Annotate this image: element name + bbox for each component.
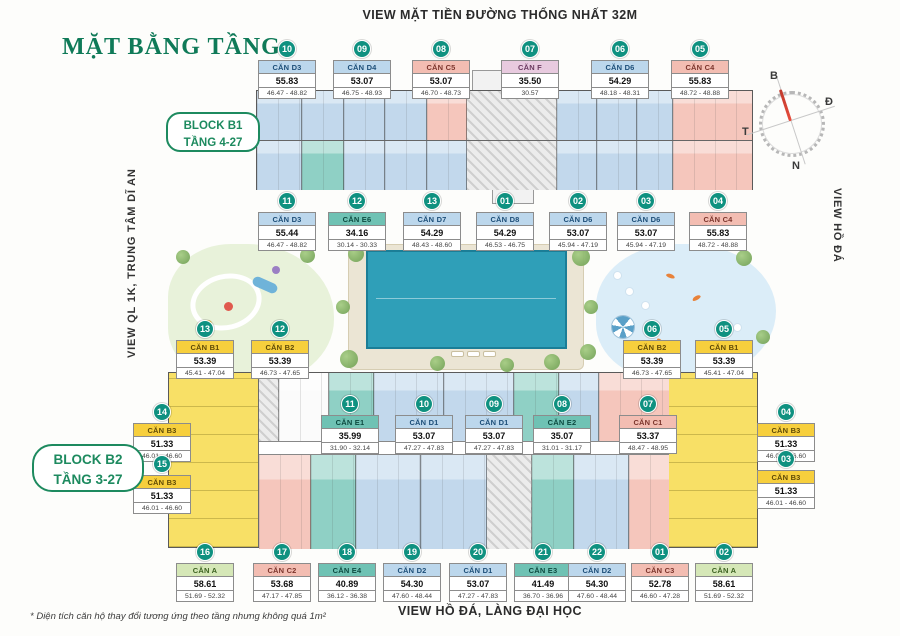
unit-range: 31.90 - 32.14 (321, 443, 379, 454)
koi-fish-icon (666, 273, 676, 280)
unit-name: CĂN E2 (533, 415, 591, 428)
unit-badge: 09 (485, 395, 503, 413)
unit-range: 48.72 - 48.88 (671, 88, 729, 99)
unit-area: 41.49 (514, 576, 572, 591)
unit-area: 53.39 (176, 353, 234, 368)
unit-badge: 01 (496, 192, 514, 210)
compass-rose: B Đ T N (748, 74, 834, 170)
unit-badge: 16 (196, 543, 214, 561)
unit-card: 09 CĂN D1 53.07 47.27 - 47.83 (465, 395, 523, 454)
unit-card: 02 CĂN A 58.61 51.69 - 52.32 (695, 543, 753, 602)
unit-range: 30.57 (501, 88, 559, 99)
unit-name: CĂN E4 (318, 563, 376, 576)
b2-right-wing (667, 373, 757, 547)
tree-icon (580, 344, 596, 360)
unit-badge: 10 (415, 395, 433, 413)
unit-name: CĂN D3 (258, 212, 316, 225)
unit-name: CĂN D1 (465, 415, 523, 428)
unit-area: 54.29 (591, 73, 649, 88)
unit-area: 54.30 (568, 576, 626, 591)
unit-card: 16 CĂN A 58.61 51.69 - 52.32 (176, 543, 234, 602)
unit-area: 54.29 (403, 225, 461, 240)
unit-range: 47.60 - 48.44 (383, 591, 441, 602)
unit-name: CĂN D2 (383, 563, 441, 576)
tree-icon (336, 300, 350, 314)
unit-badge: 09 (353, 40, 371, 58)
unit-badge: 04 (709, 192, 727, 210)
unit-card: 12 CĂN E6 34.16 30.14 - 30.33 (328, 192, 386, 251)
unit-range: 46.01 - 46.60 (757, 498, 815, 509)
unit-badge: 05 (691, 40, 709, 58)
unit-range: 36.12 - 36.38 (318, 591, 376, 602)
unit-area: 55.83 (671, 73, 729, 88)
unit-badge: 07 (639, 395, 657, 413)
unit-area: 35.99 (321, 428, 379, 443)
unit-range: 46.73 - 47.65 (251, 368, 309, 379)
unit-name: CĂN D2 (568, 563, 626, 576)
unit-badge: 08 (553, 395, 571, 413)
unit-area: 35.07 (533, 428, 591, 443)
unit-name: CĂN A (695, 563, 753, 576)
unit-range: 46.01 - 46.60 (133, 503, 191, 514)
unit-card: 04 CĂN C4 55.83 48.72 - 48.88 (689, 192, 747, 251)
unit-badge: 11 (278, 192, 296, 210)
unit-name: CĂN B2 (251, 340, 309, 353)
unit-card: 10 CĂN D3 55.83 46.47 - 48.82 (258, 40, 316, 99)
unit-badge: 05 (715, 320, 733, 338)
unit-area: 53.39 (623, 353, 681, 368)
block-b1-floors: TẦNG 4-27 (168, 135, 258, 152)
unit-range: 46.47 - 48.82 (258, 88, 316, 99)
unit-badge: 02 (569, 192, 587, 210)
unit-name: CĂN C2 (253, 563, 311, 576)
unit-range: 46.70 - 48.73 (412, 88, 470, 99)
unit-badge: 18 (338, 543, 356, 561)
unit-name: CĂN E3 (514, 563, 572, 576)
unit-name: CĂN D4 (333, 60, 391, 73)
unit-range: 45.41 - 47.04 (695, 368, 753, 379)
unit-badge: 20 (469, 543, 487, 561)
unit-name: CĂN F (501, 60, 559, 73)
unit-range: 47.60 - 48.44 (568, 591, 626, 602)
unit-range: 46.47 - 48.82 (258, 240, 316, 251)
unit-card: 07 CĂN F 35.50 30.57 (501, 40, 559, 99)
compass-north-label: B (770, 70, 778, 82)
block-b2-floors: TẦNG 3-27 (34, 470, 142, 490)
unit-name: CĂN D7 (403, 212, 461, 225)
right-view-label: VIEW HỒ ĐÁ (831, 188, 843, 298)
unit-badge: 22 (588, 543, 606, 561)
unit-badge: 15 (153, 455, 171, 473)
unit-badge: 08 (432, 40, 450, 58)
unit-name: CĂN D6 (549, 212, 607, 225)
unit-area: 53.39 (251, 353, 309, 368)
tree-icon (756, 330, 770, 344)
unit-name: CĂN D6 (591, 60, 649, 73)
unit-badge: 14 (153, 403, 171, 421)
unit-card: 09 CĂN D4 53.07 46.75 - 48.93 (333, 40, 391, 99)
block-b2-badge: BLOCK B2 TẦNG 3-27 (32, 444, 144, 492)
unit-name: CĂN D1 (449, 563, 507, 576)
unit-range: 48.47 - 48.95 (619, 443, 677, 454)
unit-area: 53.07 (617, 225, 675, 240)
unit-badge: 12 (271, 320, 289, 338)
unit-area: 55.83 (258, 73, 316, 88)
unit-badge: 04 (777, 403, 795, 421)
unit-area: 34.16 (328, 225, 386, 240)
unit-badge: 06 (643, 320, 661, 338)
unit-range: 36.70 - 36.96 (514, 591, 572, 602)
block-b1-plan (256, 90, 753, 190)
unit-card: 20 CĂN D1 53.07 47.27 - 47.83 (449, 543, 507, 602)
unit-badge: 03 (637, 192, 655, 210)
tree-icon (176, 250, 190, 264)
unit-badge: 13 (423, 192, 441, 210)
unit-area: 58.61 (176, 576, 234, 591)
unit-range: 47.27 - 47.83 (395, 443, 453, 454)
unit-range: 30.14 - 30.33 (328, 240, 386, 251)
tree-icon (340, 350, 358, 368)
unit-range: 31.01 - 31.17 (533, 443, 591, 454)
unit-badge: 03 (777, 450, 795, 468)
unit-name: CĂN B1 (176, 340, 234, 353)
unit-card: 03 CĂN B3 51.33 46.01 - 46.60 (757, 450, 815, 509)
unit-area: 53.68 (253, 576, 311, 591)
block-b2-name: BLOCK B2 (34, 450, 142, 470)
unit-card: 08 CĂN C5 53.07 46.70 - 48.73 (412, 40, 470, 99)
compass-west-label: T (742, 126, 749, 138)
unit-range: 51.69 - 52.32 (176, 591, 234, 602)
unit-badge: 10 (278, 40, 296, 58)
tree-icon (736, 250, 752, 266)
unit-card: 07 CĂN C1 53.37 48.47 - 48.95 (619, 395, 677, 454)
unit-card: 05 CĂN C4 55.83 48.72 - 48.88 (671, 40, 729, 99)
unit-card: 06 CĂN B2 53.39 46.73 - 47.65 (623, 320, 681, 379)
unit-area: 53.07 (333, 73, 391, 88)
unit-name: CĂN A (176, 563, 234, 576)
unit-area: 54.29 (476, 225, 534, 240)
unit-badge: 06 (611, 40, 629, 58)
unit-name: CĂN C4 (671, 60, 729, 73)
block-b1-badge: BLOCK B1 TẦNG 4-27 (166, 112, 260, 152)
unit-area: 53.07 (395, 428, 453, 443)
unit-badge: 01 (651, 543, 669, 561)
page-title: MẶT BẰNG TẦNG (62, 34, 281, 61)
unit-card: 18 CĂN E4 40.89 36.12 - 36.38 (318, 543, 376, 602)
unit-area: 51.33 (133, 436, 191, 451)
unit-name: CĂN C1 (619, 415, 677, 428)
unit-area: 55.44 (258, 225, 316, 240)
play-equipment-icon (224, 302, 233, 311)
unit-name: CĂN D1 (395, 415, 453, 428)
unit-badge: 11 (341, 395, 359, 413)
unit-card: 11 CĂN E1 35.99 31.90 - 32.14 (321, 395, 379, 454)
unit-name: CĂN B3 (757, 423, 815, 436)
unit-card: 02 CĂN D6 53.07 45.94 - 47.19 (549, 192, 607, 251)
unit-area: 58.61 (695, 576, 753, 591)
unit-range: 47.27 - 47.83 (465, 443, 523, 454)
tree-icon (584, 300, 598, 314)
unit-name: CĂN B3 (757, 470, 815, 483)
unit-range: 47.17 - 47.85 (253, 591, 311, 602)
unit-area: 51.33 (757, 436, 815, 451)
compass-east-label: Đ (825, 96, 833, 108)
unit-badge: 02 (715, 543, 733, 561)
unit-name: CĂN C3 (631, 563, 689, 576)
tree-icon (500, 358, 514, 372)
unit-card: 21 CĂN E3 41.49 36.70 - 36.96 (514, 543, 572, 602)
swimming-pool (366, 250, 567, 349)
unit-area: 53.07 (549, 225, 607, 240)
unit-range: 46.60 - 47.28 (631, 591, 689, 602)
unit-range: 45.94 - 47.19 (617, 240, 675, 251)
unit-area: 35.50 (501, 73, 559, 88)
unit-card: 13 CĂN B1 53.39 45.41 - 47.04 (176, 320, 234, 379)
unit-card: 08 CĂN E2 35.07 31.01 - 31.17 (533, 395, 591, 454)
unit-range: 48.43 - 48.60 (403, 240, 461, 251)
unit-card: 06 CĂN D6 54.29 48.18 - 48.31 (591, 40, 649, 99)
unit-name: CĂN B1 (695, 340, 753, 353)
unit-area: 53.37 (619, 428, 677, 443)
tree-icon (544, 354, 560, 370)
unit-name: CĂN B2 (623, 340, 681, 353)
unit-area: 53.07 (465, 428, 523, 443)
unit-area: 55.83 (689, 225, 747, 240)
floorplan-page: VIEW MẶT TIỀN ĐƯỜNG THỐNG NHẤT 32M MẶT B… (0, 0, 900, 636)
unit-card: 19 CĂN D2 54.30 47.60 - 48.44 (383, 543, 441, 602)
unit-card: 22 CĂN D2 54.30 47.60 - 48.44 (568, 543, 626, 602)
unit-range: 46.73 - 47.65 (623, 368, 681, 379)
unit-name: CĂN C4 (689, 212, 747, 225)
unit-card: 10 CĂN D1 53.07 47.27 - 47.83 (395, 395, 453, 454)
compass-south-label: N (792, 160, 800, 172)
unit-name: CĂN E1 (321, 415, 379, 428)
unit-card: 05 CĂN B1 53.39 45.41 - 47.04 (695, 320, 753, 379)
unit-area: 40.89 (318, 576, 376, 591)
unit-badge: 07 (521, 40, 539, 58)
unit-name: CĂN B3 (133, 423, 191, 436)
unit-area: 51.33 (757, 483, 815, 498)
unit-range: 45.41 - 47.04 (176, 368, 234, 379)
unit-card: 12 CĂN B2 53.39 46.73 - 47.65 (251, 320, 309, 379)
block-b1-name: BLOCK B1 (168, 118, 258, 135)
unit-range: 47.27 - 47.83 (449, 591, 507, 602)
unit-range: 46.75 - 48.93 (333, 88, 391, 99)
unit-name: CĂN C5 (412, 60, 470, 73)
unit-name: CĂN E6 (328, 212, 386, 225)
unit-range: 51.69 - 52.32 (695, 591, 753, 602)
unit-area: 52.78 (631, 576, 689, 591)
unit-name: CĂN D8 (476, 212, 534, 225)
unit-card: 03 CĂN D6 53.07 45.94 - 47.19 (617, 192, 675, 251)
koi-fish-icon (692, 294, 702, 302)
footnote: * Diện tích căn hộ thay đổi tương ứng th… (30, 611, 326, 622)
unit-badge: 19 (403, 543, 421, 561)
unit-area: 53.07 (412, 73, 470, 88)
left-view-label: VIEW QL 1K, TRUNG TÂM DĨ AN (126, 148, 138, 358)
unit-range: 48.18 - 48.31 (591, 88, 649, 99)
unit-card: 13 CĂN D7 54.29 48.43 - 48.60 (403, 192, 461, 251)
unit-card: 17 CĂN C2 53.68 47.17 - 47.85 (253, 543, 311, 602)
unit-range: 45.94 - 47.19 (549, 240, 607, 251)
unit-card: 01 CĂN D8 54.29 46.53 - 46.75 (476, 192, 534, 251)
bottom-view-label: VIEW HỒ ĐÁ, LÀNG ĐẠI HỌC (340, 604, 640, 618)
play-equipment-icon (272, 266, 280, 274)
top-view-label: VIEW MẶT TIỀN ĐƯỜNG THỐNG NHẤT 32M (270, 8, 730, 22)
unit-badge: 17 (273, 543, 291, 561)
unit-card: 11 CĂN D3 55.44 46.47 - 48.82 (258, 192, 316, 251)
unit-badge: 21 (534, 543, 552, 561)
unit-range: 46.53 - 46.75 (476, 240, 534, 251)
unit-card: 01 CĂN C3 52.78 46.60 - 47.28 (631, 543, 689, 602)
unit-badge: 13 (196, 320, 214, 338)
unit-range: 48.72 - 48.88 (689, 240, 747, 251)
unit-area: 53.39 (695, 353, 753, 368)
unit-badge: 12 (348, 192, 366, 210)
unit-name: CĂN D6 (617, 212, 675, 225)
unit-area: 53.07 (449, 576, 507, 591)
unit-name: CĂN D3 (258, 60, 316, 73)
unit-area: 54.30 (383, 576, 441, 591)
tree-icon (430, 356, 445, 371)
